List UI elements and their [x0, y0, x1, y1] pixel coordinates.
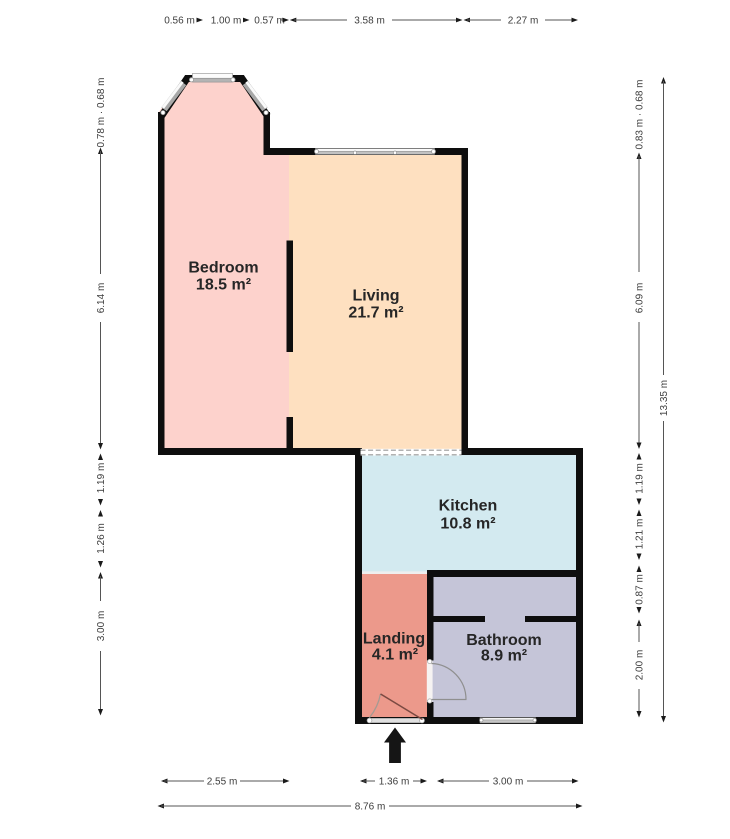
svg-text:Bathroom: Bathroom — [466, 632, 542, 649]
svg-text:Landing: Landing — [363, 631, 425, 648]
svg-text:6.14 m: 6.14 m — [96, 283, 107, 314]
svg-text:21.7 m²: 21.7 m² — [348, 305, 403, 322]
svg-text:1.36 m: 1.36 m — [379, 777, 410, 788]
svg-text:13.35 m: 13.35 m — [659, 380, 670, 416]
svg-text:0.78 m · 0.68 m: 0.78 m · 0.68 m — [96, 77, 107, 147]
svg-text:1.19 m: 1.19 m — [96, 463, 107, 494]
svg-text:4.1 m²: 4.1 m² — [372, 647, 418, 664]
svg-text:2.55 m: 2.55 m — [207, 777, 238, 788]
svg-text:0.57 m: 0.57 m — [254, 16, 285, 27]
svg-text:3.58 m: 3.58 m — [354, 16, 385, 27]
svg-text:8.9 m²: 8.9 m² — [481, 648, 527, 665]
svg-text:6.09 m: 6.09 m — [635, 283, 646, 314]
svg-text:1.21 m: 1.21 m — [635, 519, 646, 550]
svg-text:Kitchen: Kitchen — [439, 498, 498, 515]
svg-text:18.5 m²: 18.5 m² — [196, 277, 251, 294]
svg-text:1.19 m: 1.19 m — [635, 463, 646, 494]
svg-text:Bedroom: Bedroom — [188, 260, 258, 277]
svg-text:2.00 m: 2.00 m — [635, 650, 646, 681]
svg-text:2.27 m: 2.27 m — [508, 16, 539, 27]
svg-text:3.00 m: 3.00 m — [96, 611, 107, 642]
svg-text:1.26 m: 1.26 m — [96, 523, 107, 554]
svg-text:1.00 m: 1.00 m — [211, 16, 242, 27]
svg-text:0.83 m · 0.68 m: 0.83 m · 0.68 m — [635, 79, 646, 149]
svg-text:Living: Living — [352, 288, 399, 305]
svg-text:3.00 m: 3.00 m — [493, 777, 524, 788]
svg-text:0.87 m: 0.87 m — [635, 574, 646, 605]
svg-text:10.8 m²: 10.8 m² — [440, 516, 495, 533]
svg-text:0.56 m: 0.56 m — [164, 16, 195, 27]
svg-text:8.76 m: 8.76 m — [355, 802, 386, 813]
